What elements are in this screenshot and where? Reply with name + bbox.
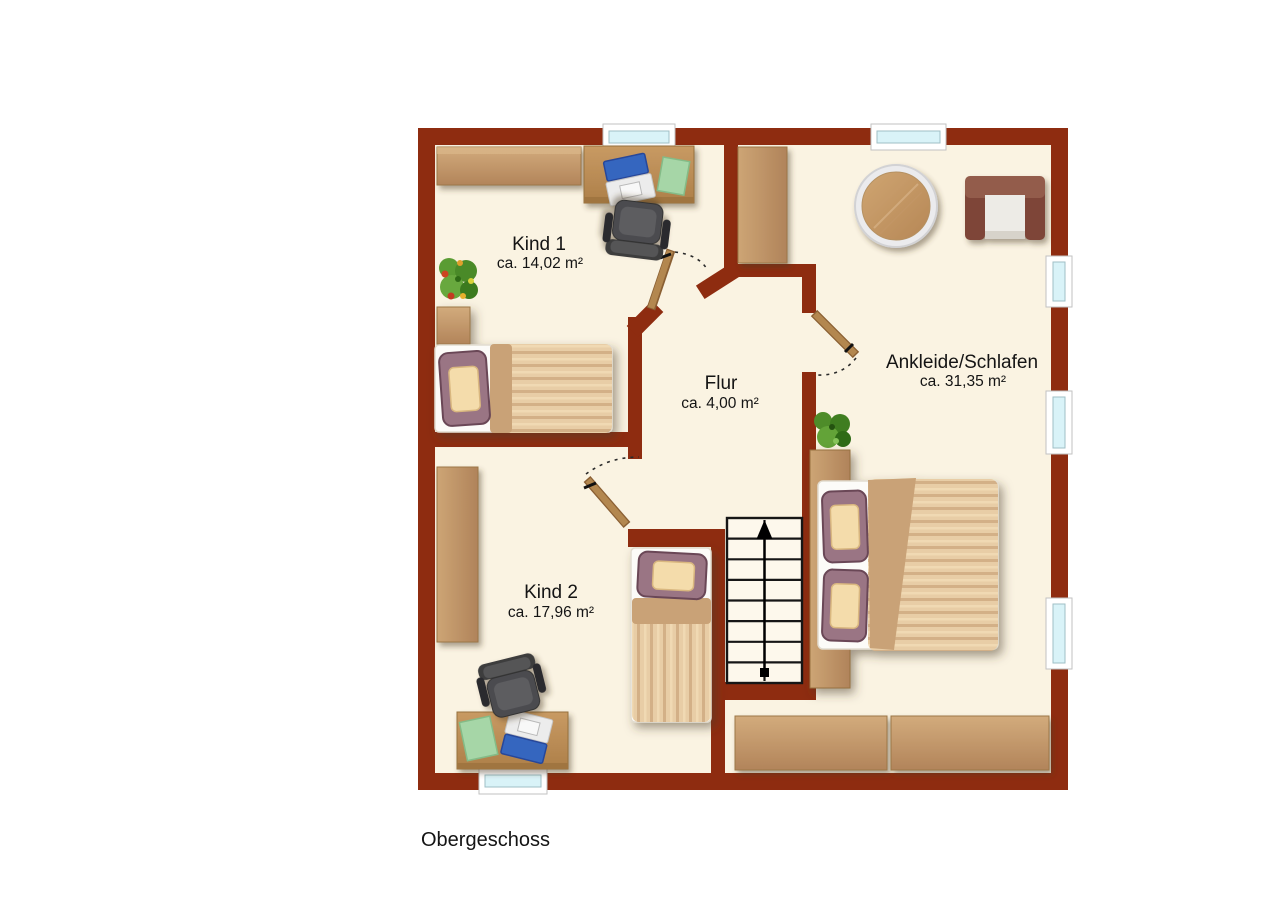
flur-area: ca. 4,00 m² bbox=[681, 395, 759, 412]
blanket-fold bbox=[632, 598, 711, 624]
bed-pillow-inner bbox=[449, 366, 481, 412]
ankleide-plant bbox=[814, 412, 851, 448]
kind2-wardrobe bbox=[437, 467, 478, 642]
outer-wall-left bbox=[418, 128, 435, 790]
outer-wall-right bbox=[1051, 128, 1068, 790]
wall-elbow-kind1-door bbox=[638, 312, 652, 326]
ankleide-sideboard-right bbox=[891, 716, 1049, 770]
wall-nook-top bbox=[628, 529, 725, 547]
bed-headboard-cabinet bbox=[437, 307, 470, 344]
window-right-middle bbox=[1046, 391, 1072, 454]
wall-kind2-ankleide bbox=[711, 529, 725, 773]
bed-pillow-inner bbox=[652, 561, 694, 591]
outer-wall-top bbox=[418, 128, 1068, 145]
floor-plan-page: Kind 1 ca. 14,02 m² Kind 2 ca. 17,96 m² … bbox=[0, 0, 1280, 905]
kind1-area: ca. 14,02 m² bbox=[497, 255, 583, 272]
ankleide-area: ca. 31,35 m² bbox=[920, 373, 1006, 390]
staircase-up bbox=[727, 518, 802, 683]
kind2-area: ca. 17,96 m² bbox=[508, 604, 594, 621]
wall-stairwell-bottom bbox=[711, 682, 816, 700]
window-bottom-kind2 bbox=[479, 768, 547, 794]
kind1-wardrobe bbox=[437, 147, 581, 185]
kind1-label: Kind 1 bbox=[512, 234, 566, 255]
room-ankleide bbox=[816, 145, 1051, 773]
ankleide-round-table bbox=[855, 165, 937, 247]
kind1-plant bbox=[439, 258, 478, 300]
wall-kind1-kind2 bbox=[435, 432, 642, 447]
armchair-back bbox=[965, 176, 1045, 198]
kind2-label: Kind 2 bbox=[524, 582, 578, 603]
ankleide-armchair bbox=[965, 176, 1045, 240]
wall-flur-left bbox=[628, 317, 642, 459]
wall-kind1-ankleide bbox=[724, 145, 738, 277]
floor-plan-drawing: Kind 1 ca. 14,02 m² Kind 2 ca. 17,96 m² … bbox=[0, 0, 1280, 905]
blanket-fold bbox=[490, 344, 512, 433]
flur-label: Flur bbox=[705, 373, 738, 394]
wall-flur-right-upper bbox=[802, 264, 816, 313]
kind1-green-folder bbox=[657, 157, 689, 195]
window-right-upper bbox=[1046, 256, 1072, 307]
ankleide-sideboard-left bbox=[735, 716, 887, 770]
window-top-ankleide bbox=[871, 124, 946, 150]
ankleide-label: Ankleide/Schlafen bbox=[886, 352, 1038, 373]
floor-title: Obergeschoss bbox=[421, 829, 550, 851]
window-right-lower bbox=[1046, 598, 1072, 669]
ankleide-wardrobe bbox=[738, 147, 787, 263]
kind2-single-bed bbox=[631, 548, 711, 722]
